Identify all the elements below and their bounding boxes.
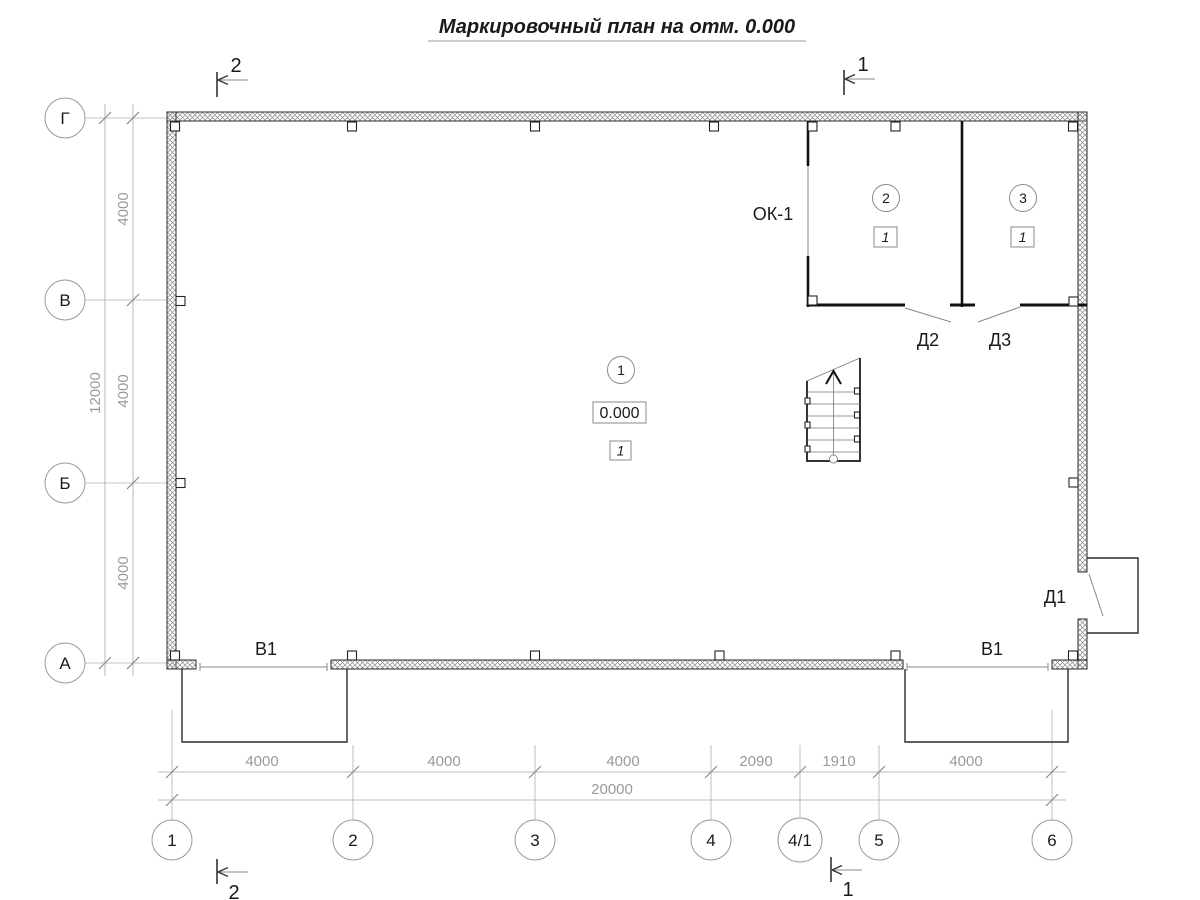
wall-bottom-left <box>167 660 196 669</box>
axis-label-b: Б <box>59 474 70 493</box>
wall-bottom-middle <box>331 660 903 669</box>
wall-right-upper <box>1078 112 1087 572</box>
dim-bottom-total: 20000 <box>591 781 633 798</box>
section-label: 2 <box>228 882 239 900</box>
door-d3-leader <box>978 307 1020 322</box>
plan-canvas: Маркировочный план на отм. 0.000 4000 40… <box>0 0 1200 900</box>
axis-label-4-1: 4/1 <box>788 831 812 850</box>
axis-label-6: 6 <box>1047 831 1056 850</box>
exterior-walls <box>167 112 1087 669</box>
wall-top <box>167 112 1087 121</box>
dim-bottom-seg-4: 2090 <box>739 753 772 770</box>
dim-bottom-seg-1: 4000 <box>245 753 278 770</box>
dim-bottom-seg-6: 4000 <box>949 753 982 770</box>
room-marker-1: 1 0.000 1 <box>593 357 646 461</box>
bottom-dimension-system: 4000 4000 4000 2090 1910 4000 20000 1 2 … <box>152 710 1072 862</box>
drawing-title: Маркировочный план на отм. 0.000 <box>439 16 795 38</box>
axis-label-4: 4 <box>706 831 715 850</box>
staircase <box>805 358 861 463</box>
section-label: 2 <box>230 55 241 77</box>
left-dimension-system: 4000 4000 4000 12000 Г В Б А <box>45 98 168 683</box>
elevation-value: 0.000 <box>599 405 639 422</box>
room-marker-2: 2 1 <box>873 185 900 248</box>
room-number: 1 <box>617 362 625 378</box>
gate-opening-right <box>907 663 1048 671</box>
section-label: 1 <box>842 879 853 900</box>
column-markers <box>171 122 1079 660</box>
door-d3-label: Д3 <box>989 330 1011 350</box>
door-d2-leader <box>905 308 951 322</box>
gate-opening-left <box>200 663 327 671</box>
section-mark-bottom-right: 1 <box>831 857 862 900</box>
finish-type: 1 <box>617 443 625 459</box>
section-label: 1 <box>857 54 868 76</box>
loading-ramp-left <box>182 669 347 742</box>
dim-left-seg-2: 4000 <box>115 374 132 407</box>
window-ok1-label: ОК-1 <box>753 204 794 224</box>
door-d2-label: Д2 <box>917 330 939 350</box>
door-d1-label: Д1 <box>1044 587 1066 607</box>
section-mark-top-right: 1 <box>844 54 875 95</box>
interior-partitions <box>807 121 1088 307</box>
room-number: 3 <box>1019 190 1027 206</box>
section-mark-top-left: 2 <box>217 55 248 97</box>
axis-label-a: А <box>59 654 71 673</box>
finish-type: 1 <box>882 229 890 245</box>
room-number: 2 <box>882 190 890 206</box>
dim-bottom-seg-5: 1910 <box>822 753 855 770</box>
wall-left <box>167 112 176 669</box>
axis-label-1: 1 <box>167 831 176 850</box>
dim-bottom-seg-3: 4000 <box>606 753 639 770</box>
dim-left-seg-1: 4000 <box>115 192 132 225</box>
dim-bottom-seg-2: 4000 <box>427 753 460 770</box>
dim-left-seg-3: 4000 <box>115 556 132 589</box>
axis-label-g: Г <box>60 109 69 128</box>
loading-ramp-right <box>905 669 1068 742</box>
entry-porch-d1 <box>1087 558 1138 633</box>
room-marker-3: 3 1 <box>1010 185 1037 248</box>
finish-type: 1 <box>1019 229 1027 245</box>
axis-label-3: 3 <box>530 831 539 850</box>
wall-bottom-right <box>1052 660 1087 669</box>
section-mark-bottom-left: 2 <box>217 859 248 900</box>
axis-label-5: 5 <box>874 831 883 850</box>
axis-label-v: В <box>59 291 70 310</box>
gate-b1-left-label: В1 <box>255 639 277 659</box>
floor-plan-drawing: Маркировочный план на отм. 0.000 4000 40… <box>0 0 1200 900</box>
axis-label-2: 2 <box>348 831 357 850</box>
door-d1-leader <box>1089 574 1103 616</box>
gate-b1-right-label: В1 <box>981 639 1003 659</box>
dim-left-total: 12000 <box>87 372 104 414</box>
